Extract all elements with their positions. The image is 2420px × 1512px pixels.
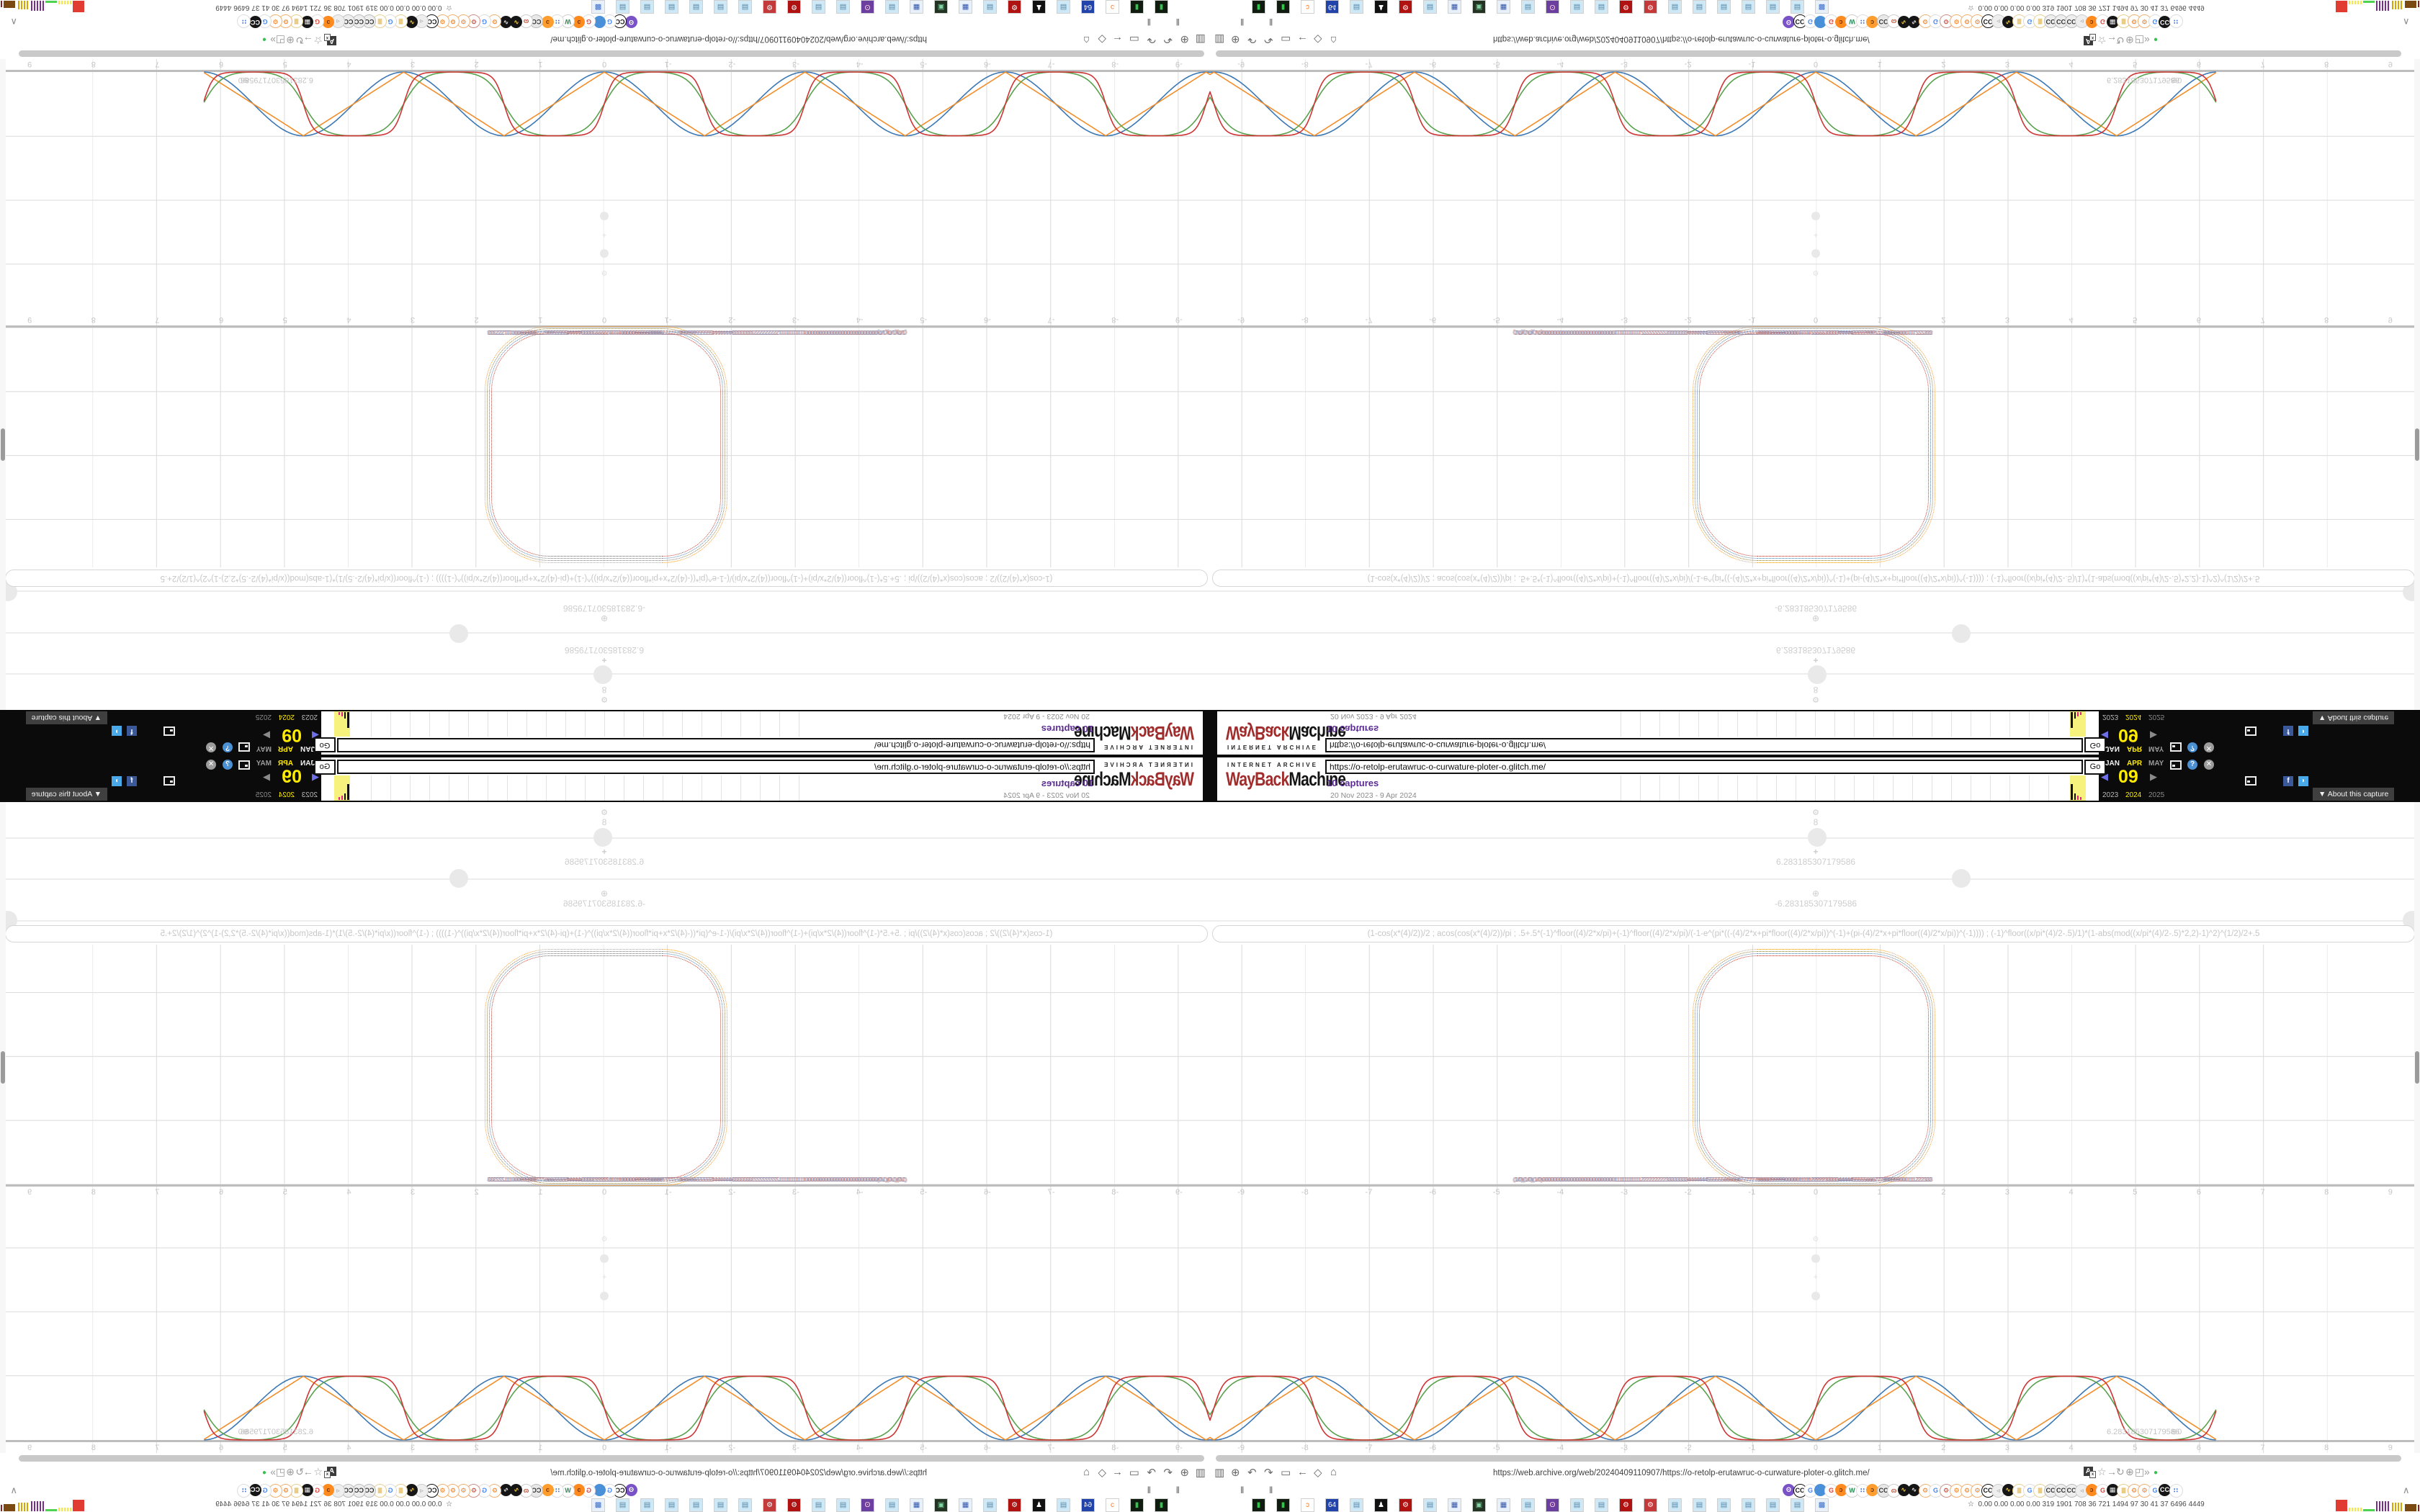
folder-icon[interactable]: ▭ [1281,33,1291,46]
extension-icon[interactable] [594,16,606,28]
taskbar-app-icon[interactable]: ▤ [1570,1498,1584,1512]
taskbar-app-icon[interactable]: ▤ [616,0,629,14]
horizontal-scrollbar-thumb[interactable] [1216,50,2401,57]
taskbar-app-icon[interactable]: ⚙ [787,1498,801,1512]
horizontal-scrollbar-thumb[interactable] [1216,1455,2401,1462]
redo-icon[interactable]: ↷ [1147,1466,1156,1479]
taskbar-app-icon[interactable]: ▤ [836,0,850,14]
undo-icon[interactable]: ↶ [1247,1466,1257,1479]
taskbar-app-icon[interactable]: ▤ [1350,0,1363,14]
forward-arrow-icon[interactable]: → [303,1466,313,1477]
taskbar-app-icon[interactable]: ▤ [836,1498,850,1512]
taskbar-app-icon[interactable]: ɔ [1301,1498,1314,1512]
taskbar-app-icon[interactable]: ▤ [1742,0,1755,14]
shield-icon[interactable]: ◇ [1314,1466,1322,1479]
taskbar-app-icon[interactable]: ɔ [1106,0,1119,14]
taskbar-app-icon[interactable]: ▤ [1791,0,1804,14]
taskbar-app-icon[interactable]: ʘ [861,0,874,14]
slider3-track[interactable] [1210,920,2420,922]
vertical-scrollbar-thumb[interactable] [2415,428,2419,461]
captures-link[interactable]: 10 captures [1327,778,1379,788]
back-arrow-icon[interactable]: ← [1112,34,1123,46]
taskbar-app-icon[interactable]: ▮ [1252,0,1265,14]
next-capture-arrow[interactable]: ▶ [263,729,270,741]
taskbar-app-icon[interactable]: ▤ [885,0,899,14]
taskbar-app-icon[interactable]: ▦ [1497,1498,1510,1512]
taskbar-app-icon[interactable]: ▮ [1155,1498,1168,1512]
taskbar-app-icon[interactable]: ⚙ [1008,1498,1021,1512]
taskbar-app-icon[interactable]: ⚙ [763,1498,776,1512]
wayback-url-input[interactable]: https://o-retolp-erutawruc-o-curwature-p… [337,760,1095,774]
taskbar-app-icon[interactable]: ⚙ [1399,0,1412,14]
window-share-icon[interactable] [2245,776,2257,786]
help-icon[interactable]: ? [223,742,233,752]
formula-input[interactable]: (1-cos(x*(4)/2))/2 ; acos(cos(x*(4)/2))/… [5,570,1208,587]
twitter-icon[interactable]: ◗ [2298,726,2308,736]
taskbar-app-icon[interactable]: ▤ [616,1498,629,1512]
undo-icon[interactable]: ↶ [1163,33,1173,46]
slider2-track[interactable] [1210,632,2420,634]
about-this-capture-button[interactable]: ▼ About this capture [2313,788,2394,801]
slider2-thumb[interactable] [449,869,468,888]
mini-slider-thumb[interactable] [600,212,609,220]
slider2-thumb[interactable] [1952,624,1971,643]
twitter-icon[interactable]: ◗ [112,776,122,786]
extension-icon[interactable]: ɔ [323,16,335,28]
pause-bars-icon[interactable]: ‖ [1240,1485,1245,1495]
extension-icon[interactable]: ɔ [573,16,586,28]
previous-capture-arrow[interactable]: ◀ [2101,771,2108,783]
previous-capture-arrow[interactable]: ◀ [312,771,319,783]
taskbar-app-icon[interactable]: ▮ [1130,1498,1144,1512]
taskbar-app-icon[interactable]: ▦ [1497,0,1510,14]
reload-icon[interactable]: ↻ [295,1466,304,1478]
overflow-chevrons-icon[interactable]: » [2144,35,2150,46]
extension-puzzle-icon[interactable]: ◰ [276,34,285,46]
extension-icon[interactable]: CC [249,1484,261,1496]
extension-icon[interactable]: ∷ [238,14,251,28]
taskbar-app-icon[interactable]: ▤ [1595,1498,1608,1512]
taskbar-app-icon[interactable]: ⚙ [1619,1498,1633,1512]
taskbar-app-icon[interactable]: ▤ [885,1498,899,1512]
taskbar-app-icon[interactable]: ʘ [1546,0,1559,14]
taskbar-app-icon[interactable]: ▦ [910,0,923,14]
globe-icon[interactable]: ⊕ [286,34,295,46]
globe-lines-icon[interactable]: ⊕ [1180,33,1189,46]
mini-slider-thumb[interactable] [600,1292,609,1300]
taskbar-app-icon[interactable]: ▦ [959,1498,972,1512]
overflow-chevron-icon[interactable]: ∧ [10,1485,17,1496]
vertical-scrollbar[interactable] [0,802,6,1453]
pause-bars-icon[interactable]: ‖ [1175,1485,1180,1495]
taskbar-app-icon[interactable]: ▦ [910,1498,923,1512]
calendar-month: APR [2127,744,2142,752]
shield-icon[interactable]: ◇ [1098,1466,1106,1479]
extension-icon[interactable]: ▦ [302,16,314,28]
shield-icon[interactable]: ◇ [1098,33,1106,46]
taskbar-app-icon[interactable]: ♟ [1032,0,1046,14]
axis-tick-label: -6 [973,1444,1002,1452]
taskbar-app-icon[interactable]: ⚙ [763,0,776,14]
axis-tick-label: 6 [207,1188,236,1197]
slider1-thumb[interactable] [1808,665,1827,684]
calendar-year[interactable]: 2025 [2148,713,2164,721]
taskbar-app-icon[interactable]: ▤ [1423,1498,1437,1512]
taskbar-app-icon[interactable]: ▣ [1472,0,1486,14]
address-bar-url[interactable]: https://web.archive.org/web/202404091109… [1493,35,1870,43]
vertical-scrollbar[interactable] [2414,59,2420,710]
globe-icon[interactable]: ⊕ [2125,1466,2134,1478]
about-this-capture-button[interactable]: ▼ About this capture [26,788,107,801]
facebook-icon[interactable]: f [127,776,137,786]
taskbar-app-icon[interactable]: ▤ [812,1498,825,1512]
window-share-icon[interactable] [163,726,175,736]
pause-bars-icon[interactable]: ‖ [1269,1485,1274,1495]
back-arrow-icon[interactable]: ← [1297,34,1308,46]
captures-link[interactable]: 10 captures [1041,724,1093,734]
lock-icon[interactable]: ⌂ [1083,1466,1090,1478]
next-capture-arrow[interactable]: ▶ [263,771,270,783]
taskbar-app-icon[interactable]: ▤ [1423,0,1437,14]
taskbar-app-icon[interactable]: ▤ [1521,1498,1535,1512]
taskbar-app-icon[interactable]: ▤ [1570,0,1584,14]
mini-slider-thumb[interactable] [1811,1254,1820,1263]
pause-bars-icon[interactable]: ‖ [1240,17,1245,27]
forward-arrow-icon[interactable]: → [2107,1466,2117,1477]
folder-icon[interactable]: ▭ [1281,1466,1291,1479]
taskbar-app-icon[interactable]: ▤ [1766,0,1780,14]
taskbar-app-icon[interactable]: ▤ [689,1498,703,1512]
vertical-scrollbar[interactable] [0,59,6,710]
taskbar-app-icon[interactable]: ▤ [1791,1498,1804,1512]
forward-arrow-icon[interactable]: → [303,35,313,46]
window-icon[interactable] [238,742,250,752]
globe-icon[interactable]: ⊕ [286,1466,295,1478]
next-capture-arrow[interactable]: ▶ [2150,729,2157,741]
taskbar-app-icon[interactable]: ▦ [1448,1498,1461,1512]
close-banner-icon[interactable]: ✕ [2204,742,2214,752]
mini-slider-thumb[interactable] [1811,249,1820,258]
facebook-icon[interactable]: f [2283,726,2293,736]
taskbar-app-icon[interactable]: ▤ [1693,0,1706,14]
taskbar-app-icon[interactable]: ▤ [1350,1498,1363,1512]
mini-slider-thumb[interactable] [1811,212,1820,220]
taskbar-app-icon[interactable]: ▩ [591,0,605,14]
window-icon[interactable] [2170,742,2182,752]
taskbar-app-icon[interactable]: ▤ [1717,1498,1731,1512]
wayback-url-input[interactable]: https://o-retolp-erutawruc-o-curwature-p… [1325,760,2083,774]
taskbar-app-icon[interactable]: ʘ [1546,1498,1559,1512]
pause-bars-icon[interactable]: ‖ [1175,17,1180,27]
taskbar-app-icon[interactable]: ▤ [640,0,654,14]
overflow-chevrons-icon[interactable]: » [2144,1466,2150,1477]
address-bar-url[interactable]: https://web.archive.org/web/202404091109… [550,35,927,43]
calendar-year[interactable]: 2025 [256,791,272,799]
calendar-year[interactable]: 2023 [302,791,318,799]
axis-tick-label: -1 [654,60,683,68]
overflow-chevron-icon[interactable]: ∧ [10,16,17,27]
taskbar-app-icon[interactable]: ▤ [640,1498,654,1512]
taskbar-app-icon[interactable]: ▣ [934,0,948,14]
back-arrow-icon[interactable]: ← [1297,1466,1308,1478]
calendar-month: MAY [2148,744,2164,752]
taskbar-app-icon[interactable]: ♟ [1032,1498,1046,1512]
address-bar-url[interactable]: https://web.archive.org/web/202404091109… [1493,1469,1870,1477]
extension-icon[interactable]: CC [249,16,261,28]
formula-input[interactable]: (1-cos(x*(4)/2))/2 ; acos(cos(x*(4)/2))/… [1212,925,2415,942]
overflow-chevron-icon[interactable]: ∧ [2403,1485,2410,1496]
captures-sparkline[interactable] [1621,711,2086,737]
vertical-scrollbar-thumb[interactable] [1,1051,5,1084]
translate-icon[interactable]: Ax [327,1467,336,1476]
window-icon[interactable] [238,760,250,770]
extension-puzzle-icon[interactable]: ◰ [2135,34,2144,46]
slider3-track[interactable] [0,920,1210,922]
overflow-chevrons-icon[interactable]: » [270,1466,276,1477]
slider1-value: 8 [532,685,676,695]
lock-icon[interactable]: ⌂ [1330,1466,1337,1478]
current-capture-highlight[interactable] [334,711,350,737]
captures-link[interactable]: 10 captures [1041,778,1093,788]
bookmark-star-icon[interactable]: ☆ [313,1466,323,1478]
taskbar-app-icon[interactable]: ɔ [1106,1498,1119,1512]
taskbar-app-icon[interactable]: ⚙ [1644,0,1657,14]
taskbar-app-icon[interactable]: ▩ [591,1498,605,1512]
horizontal-scrollbar-thumb[interactable] [19,50,1204,57]
reload-icon[interactable]: ↻ [2116,34,2125,46]
back-arrow-icon[interactable]: ← [1112,1466,1123,1478]
lock-icon[interactable]: ⌂ [1330,34,1337,46]
taskbar-app-icon[interactable]: ▤ [738,1498,752,1512]
folder-icon[interactable]: ▭ [1129,33,1139,46]
reload-icon[interactable]: ↻ [295,34,304,46]
slider3-track[interactable] [1210,590,2420,592]
extension-icon[interactable]: ɔ [542,1484,554,1496]
captures-sparkline[interactable] [334,775,799,801]
next-capture-arrow[interactable]: ▶ [2150,771,2157,783]
extension-icon[interactable]: ∷ [238,1484,251,1498]
taskbar-app-icon[interactable]: ▦ [1448,0,1461,14]
pause-bars-icon[interactable]: ‖ [1146,17,1151,27]
extension-icon[interactable]: ∿ [500,16,512,28]
overflow-chevrons-icon[interactable]: » [270,35,276,46]
axis-tick-label: 0 [590,60,619,68]
wayback-url-input[interactable]: https://o-retolp-erutawruc-o-curwature-p… [1325,738,2083,752]
taskbar-app-icon[interactable]: ▤ [714,1498,727,1512]
bookmark-star-icon[interactable]: ☆ [2097,34,2107,46]
taskbar-app-icon[interactable]: 64 [1325,0,1339,14]
taskbar-app-icon[interactable]: ▤ [689,0,703,14]
taskbar-app-icon[interactable]: ⚙ [1619,0,1633,14]
taskbar-app-icon[interactable]: ▣ [934,1498,948,1512]
pause-bars-icon[interactable]: ‖ [1146,1485,1151,1495]
slider2-thumb[interactable] [1952,869,1971,888]
captures-link[interactable]: 10 captures [1327,724,1379,734]
taskbar-app-icon[interactable]: ▤ [1766,1498,1780,1512]
bookmark-star-icon[interactable]: ☆ [2097,1466,2107,1478]
taskbar-app-icon[interactable]: ♟ [1374,0,1388,14]
translate-icon[interactable]: Ax [327,36,336,45]
pause-bars-icon[interactable]: ‖ [1269,17,1274,27]
taskbar-app-icon[interactable]: ▦ [959,0,972,14]
slider1-thumb[interactable] [593,828,612,847]
formula-input[interactable]: (1-cos(x*(4)/2))/2 ; acos(cos(x*(4)/2))/… [5,925,1208,942]
calendar-year[interactable]: 2025 [2148,791,2164,799]
globe-lines-icon[interactable]: ⊕ [1231,33,1240,46]
taskbar-app-icon[interactable]: ▤ [983,0,997,14]
extension-icon[interactable]: ∿ [406,16,418,28]
horizontal-scrollbar-thumb[interactable] [19,1455,1204,1462]
current-capture-highlight[interactable] [334,775,350,801]
close-banner-icon[interactable]: ✕ [206,742,216,752]
close-banner-icon[interactable]: ✕ [2204,760,2214,770]
taskbar-app-icon[interactable]: ▤ [1668,1498,1682,1512]
window-share-icon[interactable] [163,776,175,786]
trash-icon[interactable]: ▥ [1214,33,1224,46]
vertical-scrollbar[interactable] [2414,802,2420,1453]
taskbar-app-icon[interactable]: ▣ [1472,1498,1486,1512]
slider1-thumb[interactable] [593,665,612,684]
current-capture-highlight[interactable] [2070,711,2086,737]
bookmark-star-icon[interactable]: ☆ [313,34,323,46]
trash-icon[interactable]: ▥ [1214,1466,1224,1479]
forward-arrow-icon[interactable]: → [2107,35,2117,46]
current-capture-highlight[interactable] [2070,775,2086,801]
taskbar-app-icon[interactable]: ▤ [812,0,825,14]
taskbar-app-icon[interactable]: ▤ [665,0,678,14]
taskbar-app-icon[interactable]: ▤ [1742,1498,1755,1512]
translate-icon[interactable]: Ax [2084,36,2093,45]
calendar-year[interactable]: 2023 [302,713,318,721]
taskbar-app-icon[interactable]: ⚙ [787,0,801,14]
calendar-year[interactable]: 2025 [256,713,272,721]
taskbar-app-icon[interactable]: ▮ [1130,0,1144,14]
facebook-icon[interactable]: f [127,726,137,736]
window-icon[interactable] [2170,760,2182,770]
taskbar-app-icon[interactable]: 64 [1081,0,1095,14]
window-share-icon[interactable] [2245,726,2257,736]
shield-icon[interactable]: ◇ [1314,33,1322,46]
help-icon[interactable]: ? [2187,760,2197,770]
taskbar-app-icon[interactable]: ▤ [1595,0,1608,14]
translate-icon[interactable]: Ax [2084,1467,2093,1476]
facebook-icon[interactable]: f [2283,776,2293,786]
taskbar-app-icon[interactable]: ▩ [1815,0,1829,14]
lock-icon[interactable]: ⌂ [1083,34,1090,46]
vertical-scrollbar-thumb[interactable] [2415,1051,2419,1084]
axis-tick-label: -5 [1482,315,1511,324]
axis-tick-label: 7 [2249,60,2277,68]
slider2-track[interactable] [0,632,1210,634]
taskbar-app-icon[interactable]: ▤ [665,1498,678,1512]
address-bar-url[interactable]: https://web.archive.org/web/202404091109… [550,1469,927,1477]
twitter-icon[interactable]: ◗ [112,726,122,736]
taskbar-app-icon[interactable]: ʘ [861,1498,874,1512]
globe-lines-icon[interactable]: ⊕ [1180,1466,1189,1479]
calendar-year[interactable]: 2023 [2102,791,2118,799]
taskbar-app-icon[interactable]: ⚙ [1399,1498,1412,1512]
mini-slider-thumb[interactable] [600,249,609,258]
taskbar-app-icon[interactable]: ▤ [1521,0,1535,14]
taskbar-app-icon[interactable]: 64 [1325,1498,1339,1512]
mini-slider-thumb[interactable] [1811,1292,1820,1300]
extension-icon[interactable]: ʘ [625,1484,637,1496]
slider2-thumb[interactable] [449,624,468,643]
slider3-track[interactable] [0,590,1210,592]
extension-icon[interactable]: ∿ [500,1484,512,1496]
extension-icon[interactable]: ɔ [542,16,554,28]
taskbar-app-icon[interactable]: ɔ [1301,0,1314,14]
calendar-year[interactable]: 2023 [2102,713,2118,721]
taskbar-app-icon[interactable]: ▤ [983,1498,997,1512]
extension-icon[interactable]: ʘ [625,16,637,28]
mini-slider-thumb[interactable] [600,1254,609,1263]
undo-icon[interactable]: ↶ [1163,1466,1173,1479]
globe-lines-icon[interactable]: ⊕ [1231,1466,1240,1479]
globe-icon[interactable]: ⊕ [2125,34,2134,46]
help-icon[interactable]: ? [223,760,233,770]
extension-icon[interactable]: ∿ [511,16,523,28]
taskbar-app-icon[interactable]: ▮ [1276,1498,1290,1512]
redo-icon[interactable]: ↷ [1264,33,1273,46]
trash-icon[interactable]: ▥ [1196,33,1206,46]
trash-icon[interactable]: ▥ [1196,1466,1206,1479]
taskbar-app-icon[interactable]: 64 [1081,1498,1095,1512]
taskbar-app-icon[interactable]: ▮ [1155,0,1168,14]
previous-capture-arrow[interactable]: ◀ [312,729,319,741]
extension-puzzle-icon[interactable]: ◰ [276,1466,285,1478]
folder-icon[interactable]: ▭ [1129,1466,1139,1479]
formula-input[interactable]: (1-cos(x*(4)/2))/2 ; acos(cos(x*(4)/2))/… [1212,570,2415,587]
extension-icon[interactable]: ∷ [2169,14,2183,28]
taskbar-app-icon[interactable]: ▤ [1717,0,1731,14]
taskbar-app-icon[interactable]: ♟ [1374,1498,1388,1512]
slider2-track[interactable] [0,878,1210,880]
help-icon[interactable]: ? [2187,742,2197,752]
taskbar-app-icon[interactable]: ▮ [1276,0,1290,14]
previous-capture-arrow[interactable]: ◀ [2101,729,2108,741]
taskbar-app-icon[interactable]: ▤ [738,0,752,14]
taskbar-app-icon[interactable]: ▤ [1057,0,1070,14]
about-this-capture-button[interactable]: ▼ About this capture [2313,711,2394,724]
captures-sparkline[interactable] [1621,775,2086,801]
redo-icon[interactable]: ↷ [1147,33,1156,46]
taskbar-app-icon[interactable]: ▮ [1252,1498,1265,1512]
taskbar-app-icon[interactable]: ▤ [714,0,727,14]
capture-date-range: 20 Nov 2023 - 9 Apr 2024 [1330,791,1417,800]
close-banner-icon[interactable]: ✕ [206,760,216,770]
taskbar-app-icon[interactable]: ▩ [1815,1498,1829,1512]
undo-icon[interactable]: ↶ [1247,33,1257,46]
slider1-thumb[interactable] [1808,828,1827,847]
extension-puzzle-icon[interactable]: ◰ [2135,1466,2144,1478]
wayback-url-input[interactable]: https://o-retolp-erutawruc-o-curwature-p… [337,738,1095,752]
captures-sparkline[interactable] [334,711,799,737]
slider2-track[interactable] [1210,878,2420,880]
extension-icon[interactable]: ∷ [2169,1484,2183,1498]
redo-icon[interactable]: ↷ [1264,1466,1273,1479]
reload-icon[interactable]: ↻ [2116,1466,2125,1478]
overflow-chevron-icon[interactable]: ∧ [2403,16,2410,27]
taskbar-app-icon[interactable]: ⚙ [1644,1498,1657,1512]
taskbar-app-icon[interactable]: ▤ [1693,1498,1706,1512]
taskbar-app-icon[interactable]: ▤ [1668,0,1682,14]
taskbar-app-icon[interactable]: ⚙ [1008,0,1021,14]
about-this-capture-button[interactable]: ▼ About this capture [26,711,107,724]
taskbar-app-icon[interactable]: ▤ [1057,1498,1070,1512]
vertical-scrollbar-thumb[interactable] [1,428,5,461]
twitter-icon[interactable]: ◗ [2298,776,2308,786]
